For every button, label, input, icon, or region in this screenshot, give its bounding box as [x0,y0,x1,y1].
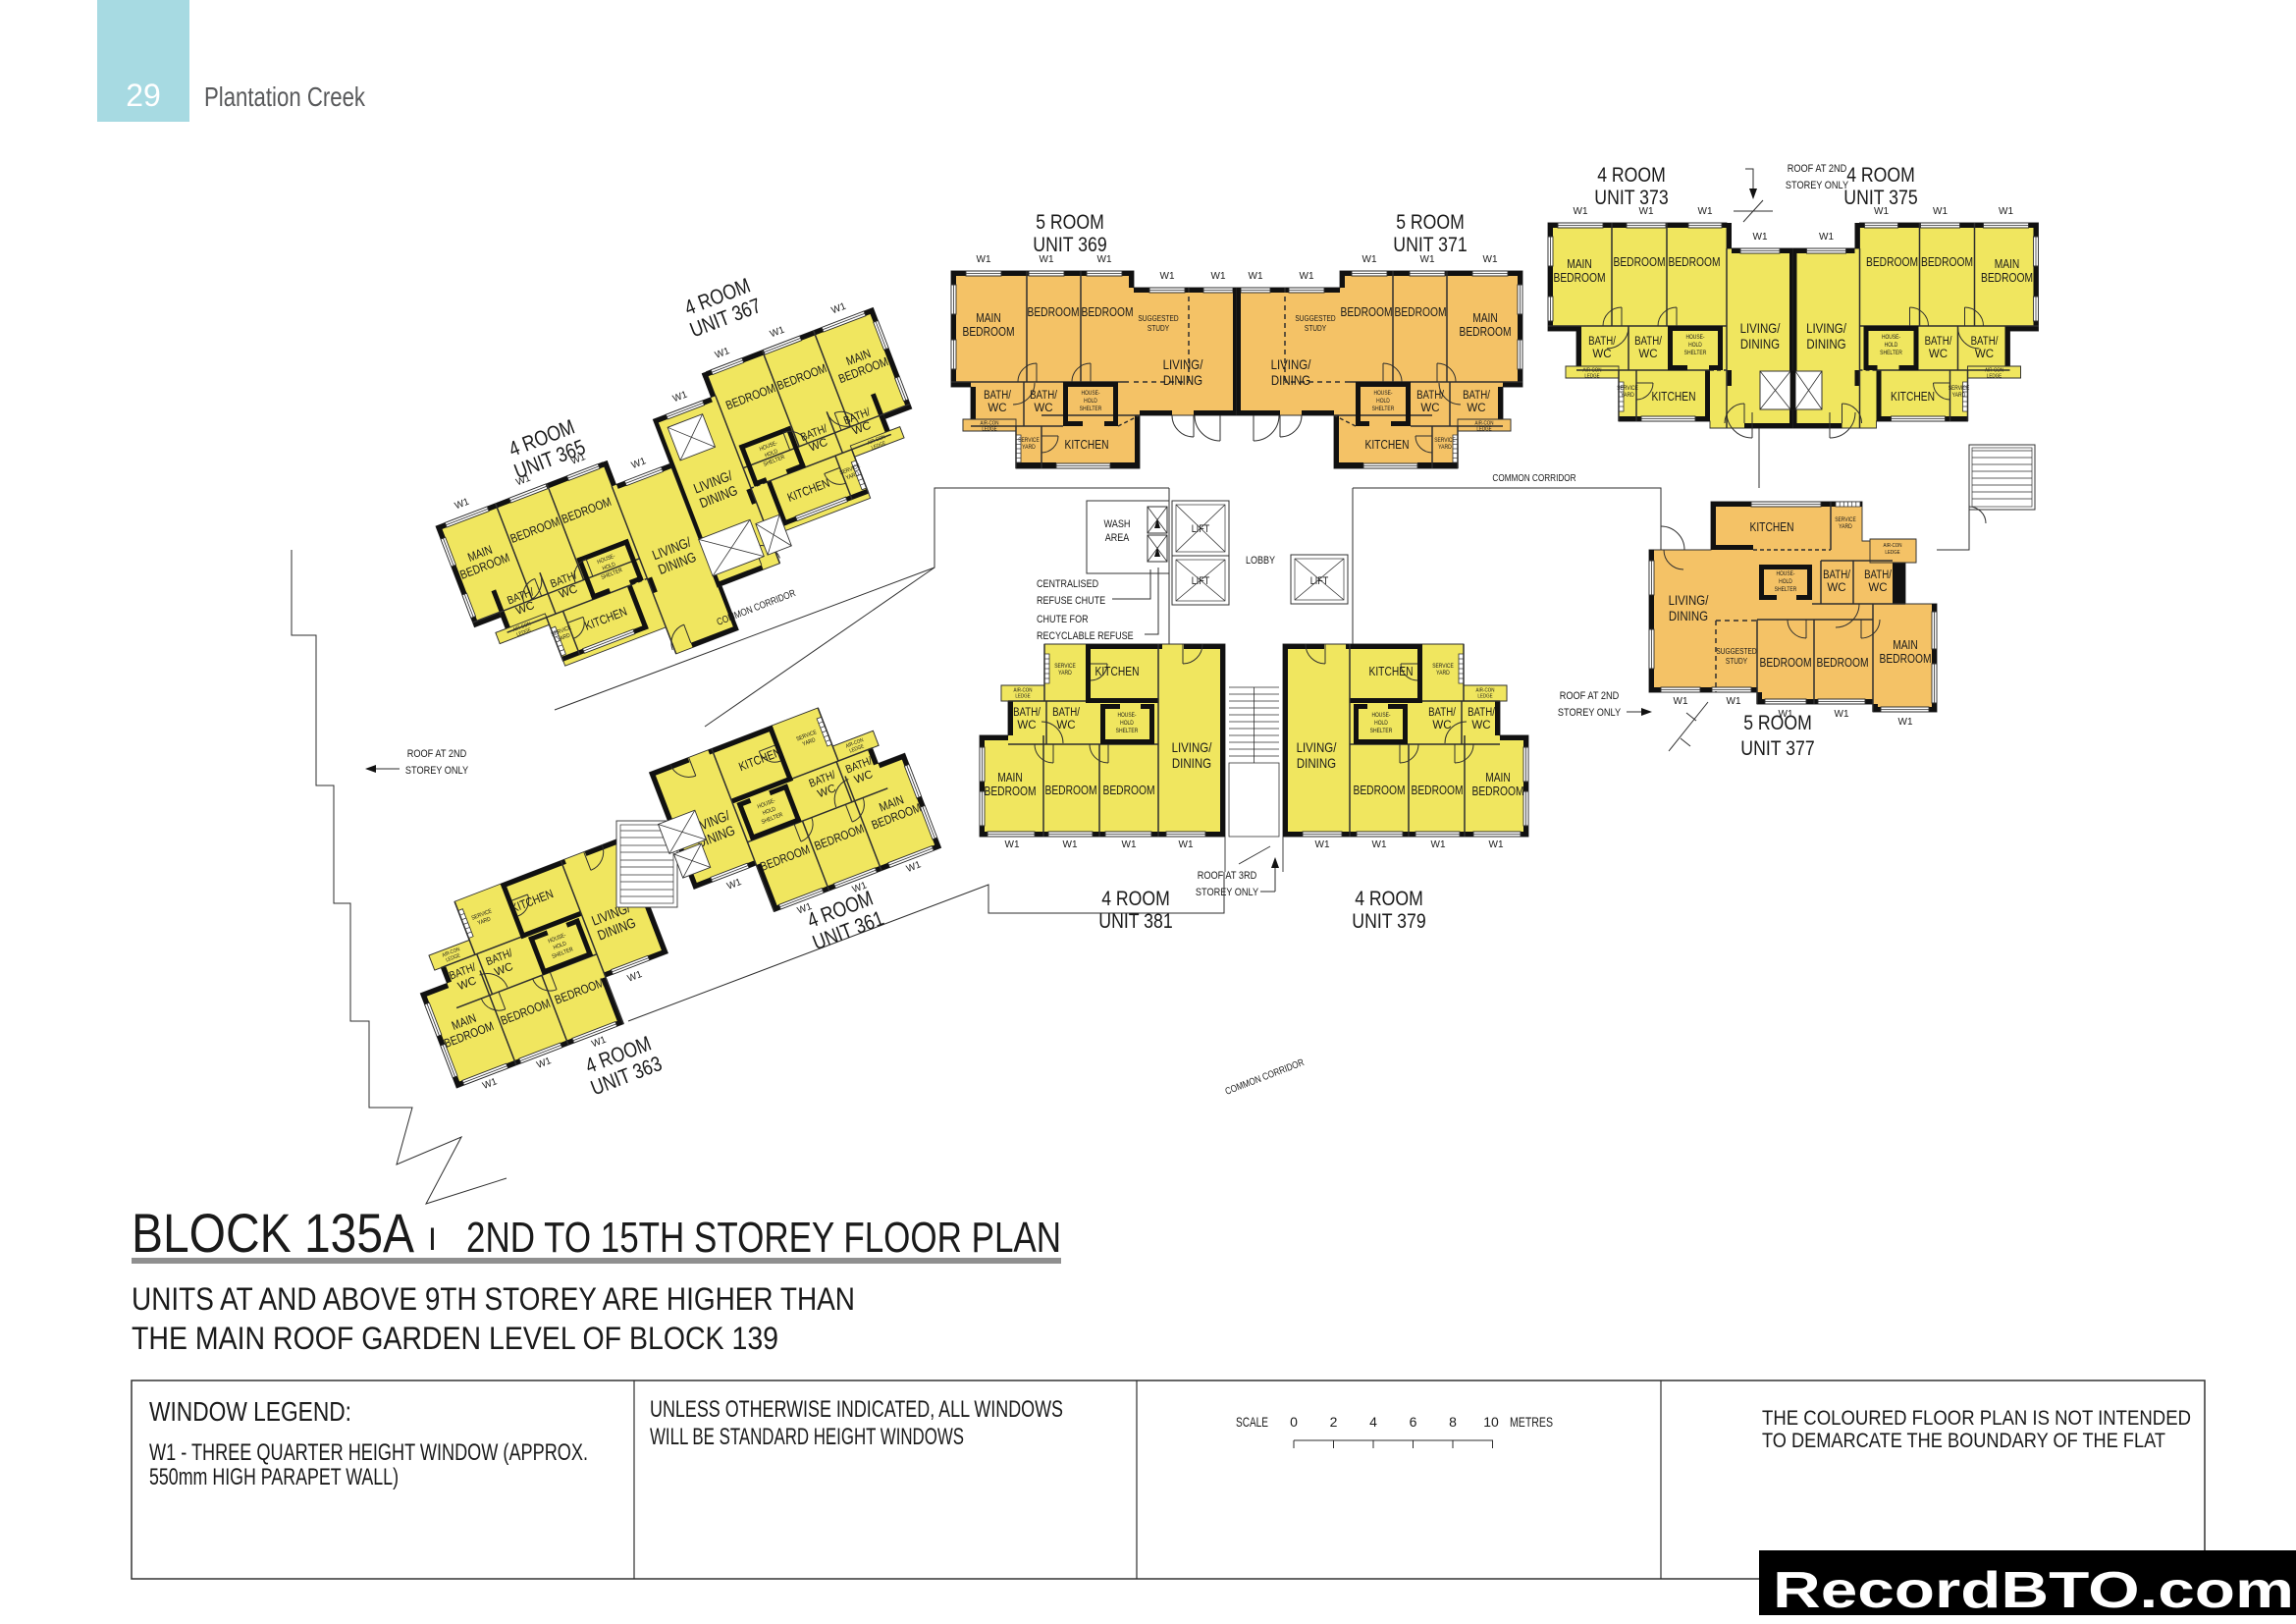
svg-text:W1: W1 [1933,206,1948,217]
svg-text:LOBBY: LOBBY [1246,555,1276,567]
svg-text:W1: W1 [977,254,991,265]
svg-text:BATH/: BATH/ [1463,390,1490,402]
svg-text:WC: WC [1471,720,1490,731]
svg-text:BATH/: BATH/ [1823,569,1850,581]
svg-text:UNLESS OTHERWISE INDICATED, A: UNLESS OTHERWISE INDICATED, ALL WINDOWS [650,1396,1063,1423]
svg-text:W1: W1 [1483,254,1498,265]
svg-text:BEDROOM: BEDROOM [1921,255,1973,269]
svg-text:HOLD: HOLD [1374,721,1388,727]
svg-text:WINDOW LEGEND:: WINDOW LEGEND: [149,1396,351,1427]
svg-text:W1 - THREE QUARTER HEIGHT WI: W1 - THREE QUARTER HEIGHT WINDOW (APPROX… [149,1439,588,1466]
svg-text:UNIT 379: UNIT 379 [1352,909,1425,933]
svg-text:BATH/: BATH/ [1416,390,1444,402]
svg-text:MAIN: MAIN [976,311,1001,325]
svg-text:RecordBTO.com: RecordBTO.com [1773,1562,2294,1619]
svg-text:KITCHEN: KITCHEN [1365,438,1410,452]
svg-text:BATH/: BATH/ [1468,707,1495,719]
svg-text:BEDROOM: BEDROOM [1082,305,1134,319]
svg-text:UNIT 369: UNIT 369 [1033,233,1106,256]
svg-text:STUDY: STUDY [1305,324,1327,333]
svg-text:HOUSE-: HOUSE- [1081,391,1099,397]
svg-text:SCALE: SCALE [1236,1414,1268,1430]
svg-text:BEDROOM: BEDROOM [1554,271,1606,285]
svg-text:5 ROOM: 5 ROOM [1743,711,1812,734]
svg-text:4 ROOM: 4 ROOM [1355,887,1423,910]
svg-text:WC: WC [1467,403,1485,414]
svg-text:W1: W1 [1300,271,1314,282]
svg-text:W1: W1 [1315,839,1330,850]
svg-text:TO DEMARCATE THE BOUNDARY OF T: TO DEMARCATE THE BOUNDARY OF THE FLAT [1762,1430,2165,1452]
svg-text:HOLD: HOLD [1120,721,1134,727]
svg-text:BEDROOM: BEDROOM [1460,325,1512,339]
svg-text:METRES: METRES [1510,1414,1553,1430]
svg-text:DINING: DINING [1806,336,1845,352]
svg-text:WC: WC [1017,720,1036,731]
svg-text:STOREY ONLY: STOREY ONLY [1196,887,1259,898]
svg-text:WC: WC [988,403,1006,414]
svg-text:BATH/: BATH/ [1428,707,1456,719]
svg-text:WC: WC [1638,349,1657,360]
svg-text:STOREY ONLY: STOREY ONLY [405,765,469,777]
svg-text:I: I [428,1221,437,1257]
svg-text:HOLD: HOLD [1084,399,1097,405]
svg-text:STOREY ONLY: STOREY ONLY [1786,180,1849,191]
svg-text:WC: WC [1975,349,1994,360]
svg-text:BEDROOM: BEDROOM [1472,785,1524,798]
svg-text:BATH/: BATH/ [1052,707,1080,719]
svg-text:HOLD: HOLD [1779,579,1792,585]
svg-text:THE MAIN ROOF GARDEN LEVEL OF: THE MAIN ROOF GARDEN LEVEL OF BLOCK 139 [132,1321,778,1356]
svg-text:BATH/: BATH/ [1634,336,1662,348]
svg-text:WC: WC [1827,582,1845,594]
svg-text:SERVICE: SERVICE [1018,438,1040,444]
svg-text:KITCHEN: KITCHEN [1369,665,1414,678]
svg-text:W1: W1 [1753,232,1768,243]
svg-text:2ND TO 15TH STOREY FLOOR PLAN: 2ND TO 15TH STOREY FLOOR PLAN [466,1214,1061,1262]
svg-text:SERVICE: SERVICE [1949,386,1970,392]
svg-text:BEDROOM: BEDROOM [1045,784,1097,797]
svg-text:29: 29 [126,78,161,113]
svg-text:5 ROOM: 5 ROOM [1036,210,1104,234]
svg-text:LIVING/: LIVING/ [1163,356,1203,372]
svg-text:MAIN: MAIN [1472,311,1498,325]
svg-text:HOUSE-: HOUSE- [1117,713,1136,719]
svg-text:W1: W1 [1489,839,1504,850]
svg-text:W1: W1 [1372,839,1387,850]
svg-text:DINING: DINING [1297,755,1336,771]
svg-text:MAIN: MAIN [1995,257,2020,271]
svg-text:YARD: YARD [1839,524,1852,530]
svg-text:MAIN: MAIN [1567,257,1592,271]
svg-text:LEDGE: LEDGE [1476,427,1492,433]
svg-text:KITCHEN: KITCHEN [1065,438,1109,452]
svg-text:YARD: YARD [1438,445,1452,451]
svg-text:6: 6 [1410,1414,1417,1430]
svg-text:LEDGE: LEDGE [1477,694,1493,700]
svg-text:W1: W1 [1160,271,1175,282]
svg-text:SERVICE: SERVICE [1432,664,1454,670]
svg-text:BATH/: BATH/ [984,390,1011,402]
svg-text:LIVING/: LIVING/ [1740,320,1781,336]
svg-text:LEDGE: LEDGE [1584,374,1600,380]
svg-text:LIVING/: LIVING/ [1669,592,1709,608]
svg-text:8: 8 [1449,1414,1457,1430]
svg-text:4 ROOM: 4 ROOM [1101,887,1170,910]
svg-text:COMMON CORRIDOR: COMMON CORRIDOR [1492,473,1575,484]
svg-text:Plantation Creek: Plantation Creek [204,81,366,112]
svg-text:SHELTER: SHELTER [1080,406,1102,412]
svg-text:BEDROOM: BEDROOM [1760,656,1812,670]
svg-text:SERVICE: SERVICE [1617,386,1638,392]
svg-text:W1: W1 [1122,839,1137,850]
svg-text:DINING: DINING [1172,755,1211,771]
svg-text:BATH/: BATH/ [1030,390,1057,402]
svg-text:LIVING/: LIVING/ [1172,739,1212,755]
svg-text:REFUSE CHUTE: REFUSE CHUTE [1037,595,1105,607]
svg-text:HOUSE-: HOUSE- [1373,391,1392,397]
svg-text:LIFT: LIFT [1192,523,1210,535]
svg-text:STOREY ONLY: STOREY ONLY [1558,707,1622,719]
svg-text:UNIT 381: UNIT 381 [1098,909,1172,933]
svg-text:SUGGESTED: SUGGESTED [1716,647,1756,656]
svg-text:KITCHEN: KITCHEN [1652,390,1696,404]
svg-text:W1: W1 [1574,206,1588,217]
svg-text:LEDGE: LEDGE [982,427,997,433]
svg-text:0: 0 [1290,1414,1298,1430]
svg-text:LIFT: LIFT [1310,575,1329,587]
svg-text:10: 10 [1483,1414,1499,1430]
svg-text:W1: W1 [1727,696,1741,707]
svg-text:WILL BE STANDARD HEIGHT WINDOW: WILL BE STANDARD HEIGHT WINDOWS [650,1424,964,1450]
svg-text:WC: WC [1432,720,1451,731]
svg-text:SHELTER: SHELTER [1372,406,1395,412]
svg-text:BEDROOM: BEDROOM [1981,271,2033,285]
svg-text:W1: W1 [1063,839,1078,850]
svg-text:W1: W1 [1898,717,1913,728]
svg-text:AREA: AREA [1105,532,1130,544]
svg-text:SERVICE: SERVICE [1434,438,1456,444]
svg-text:HOLD: HOLD [1885,343,1898,349]
svg-text:LIVING/: LIVING/ [1297,739,1337,755]
svg-text:HOLD: HOLD [1688,343,1702,349]
svg-text:BEDROOM: BEDROOM [1614,255,1666,269]
svg-text:SHELTER: SHELTER [1775,587,1797,593]
svg-text:LIVING/: LIVING/ [1271,356,1311,372]
svg-text:BATH/: BATH/ [1864,569,1892,581]
svg-text:SHELTER: SHELTER [1880,351,1902,356]
svg-text:UNIT 377: UNIT 377 [1740,736,1814,760]
svg-text:5 ROOM: 5 ROOM [1396,210,1465,234]
svg-text:YARD: YARD [1621,393,1634,399]
svg-text:KITCHEN: KITCHEN [1750,520,1794,534]
svg-text:W1: W1 [1674,696,1688,707]
svg-text:MAIN: MAIN [1485,771,1511,785]
svg-text:W1: W1 [1999,206,2013,217]
svg-text:BEDROOM: BEDROOM [1354,784,1406,797]
svg-text:4: 4 [1369,1414,1377,1430]
svg-text:THE COLOURED FLOOR PLAN IS NOT: THE COLOURED FLOOR PLAN IS NOT INTENDED [1762,1407,2191,1430]
svg-text:YARD: YARD [1952,393,1966,399]
svg-text:DINING: DINING [1163,372,1202,388]
svg-text:W1: W1 [1211,271,1226,282]
svg-text:LEDGE: LEDGE [1987,374,2002,380]
svg-text:2: 2 [1330,1414,1338,1430]
svg-text:BATH/: BATH/ [1588,336,1616,348]
svg-text:SHELTER: SHELTER [1116,729,1139,734]
svg-text:WASH: WASH [1103,518,1130,530]
svg-text:HOUSE-: HOUSE- [1882,335,1900,341]
svg-text:ROOF AT 2ND: ROOF AT 2ND [1788,163,1847,175]
svg-text:SUGGESTED: SUGGESTED [1295,314,1335,323]
svg-text:W1: W1 [1431,839,1446,850]
svg-text:SHELTER: SHELTER [1370,729,1393,734]
svg-text:YARD: YARD [1022,445,1036,451]
svg-text:KITCHEN: KITCHEN [1891,390,1935,404]
svg-text:YARD: YARD [1436,671,1450,677]
svg-text:BEDROOM: BEDROOM [1866,255,1918,269]
svg-text:ROOF AT 3RD: ROOF AT 3RD [1198,870,1257,882]
svg-text:UNIT 373: UNIT 373 [1594,186,1668,209]
svg-text:BEDROOM: BEDROOM [985,785,1037,798]
svg-text:550mm HIGH PARAPET WALL): 550mm HIGH PARAPET WALL) [149,1464,399,1490]
svg-text:BEDROOM: BEDROOM [1395,305,1447,319]
svg-text:HOLD: HOLD [1376,399,1390,405]
svg-text:4 ROOM: 4 ROOM [1846,163,1915,187]
svg-text:BEDROOM: BEDROOM [1412,784,1464,797]
svg-text:CENTRALISED: CENTRALISED [1037,578,1098,590]
svg-text:BEDROOM: BEDROOM [963,325,1015,339]
svg-text:W1: W1 [1698,206,1713,217]
svg-text:UNITS AT AND ABOVE 9TH STOREY: UNITS AT AND ABOVE 9TH STOREY ARE HIGHER… [132,1281,855,1317]
svg-text:WC: WC [1868,582,1887,594]
svg-text:YARD: YARD [1058,671,1072,677]
svg-text:BATH/: BATH/ [1013,707,1041,719]
svg-text:ROOF AT 2ND: ROOF AT 2ND [407,748,467,760]
svg-text:CHUTE FOR: CHUTE FOR [1037,614,1089,625]
svg-text:STUDY: STUDY [1726,657,1748,666]
svg-text:BATH/: BATH/ [1971,336,1999,348]
svg-text:W1: W1 [1835,709,1849,720]
svg-text:4 ROOM: 4 ROOM [1597,163,1666,187]
svg-text:MAIN: MAIN [997,771,1023,785]
svg-text:W1: W1 [1179,839,1194,850]
svg-text:UNIT 375: UNIT 375 [1843,186,1917,209]
svg-text:DINING: DINING [1740,336,1780,352]
svg-text:WC: WC [1929,349,1948,360]
svg-text:W1: W1 [1362,254,1377,265]
svg-text:UNIT 371: UNIT 371 [1393,233,1467,256]
svg-text:ROOF AT 2ND: ROOF AT 2ND [1560,690,1620,702]
svg-text:W1: W1 [1005,839,1020,850]
svg-text:STUDY: STUDY [1148,324,1170,333]
svg-text:WC: WC [1592,349,1611,360]
svg-text:BEDROOM: BEDROOM [1817,656,1869,670]
svg-text:BLOCK 135A: BLOCK 135A [132,1202,415,1264]
svg-text:DINING: DINING [1669,608,1708,623]
svg-text:SUGGESTED: SUGGESTED [1138,314,1178,323]
svg-text:HOUSE-: HOUSE- [1685,335,1704,341]
svg-text:W1: W1 [1819,232,1834,243]
svg-text:LIFT: LIFT [1192,575,1210,587]
svg-text:WC: WC [1034,403,1052,414]
svg-text:KITCHEN: KITCHEN [1095,665,1140,678]
svg-text:BEDROOM: BEDROOM [1341,305,1393,319]
svg-text:HOUSE-: HOUSE- [1371,713,1390,719]
svg-text:WC: WC [1056,720,1075,731]
svg-text:SERVICE: SERVICE [1835,517,1856,523]
svg-text:W1: W1 [1249,271,1263,282]
svg-text:LEDGE: LEDGE [1015,694,1031,700]
svg-text:SHELTER: SHELTER [1684,351,1707,356]
svg-text:BEDROOM: BEDROOM [1669,255,1721,269]
svg-text:DINING: DINING [1271,372,1310,388]
svg-text:MAIN: MAIN [1893,638,1918,652]
svg-text:LEDGE: LEDGE [1885,550,1900,556]
svg-text:BEDROOM: BEDROOM [1103,784,1155,797]
svg-text:WC: WC [1420,403,1439,414]
svg-text:HOUSE-: HOUSE- [1776,571,1794,577]
svg-text:BEDROOM: BEDROOM [1028,305,1080,319]
svg-text:SERVICE: SERVICE [1054,664,1076,670]
svg-text:LIVING/: LIVING/ [1806,320,1846,336]
svg-text:RECYCLABLE REFUSE: RECYCLABLE REFUSE [1037,630,1134,642]
svg-text:BATH/: BATH/ [1925,336,1952,348]
svg-text:BEDROOM: BEDROOM [1880,652,1932,666]
svg-text:AIR-CON: AIR-CON [1884,543,1902,549]
